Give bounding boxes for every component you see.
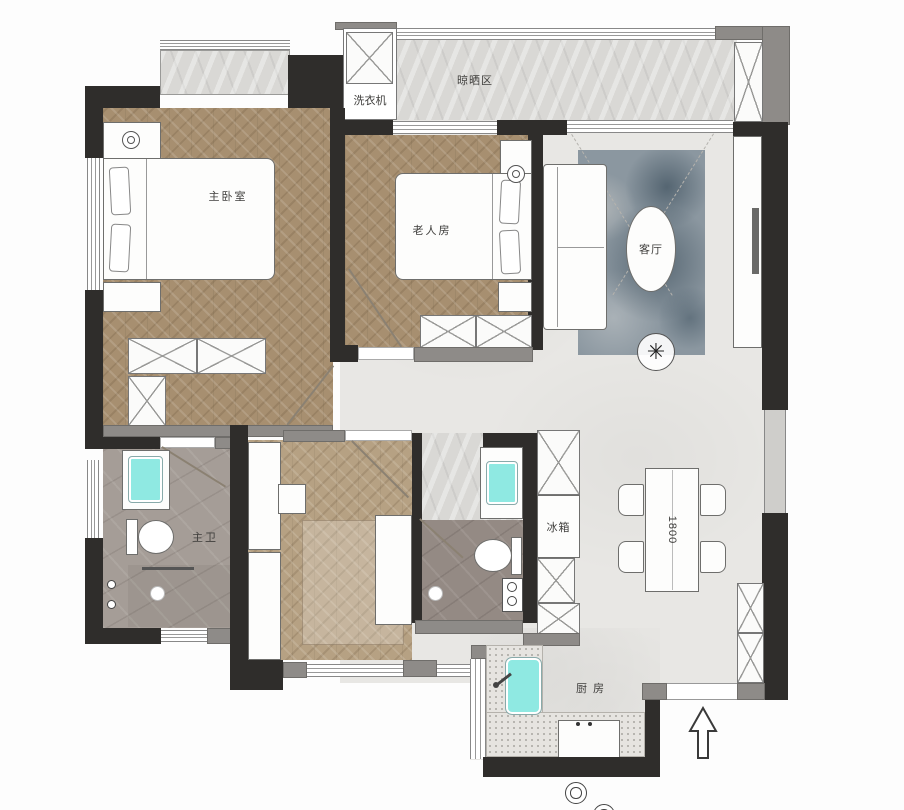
master-bedroom-window xyxy=(87,158,100,290)
master-nightstand-bottom xyxy=(103,282,161,312)
bath2-drain xyxy=(428,586,443,601)
master-wardrobe xyxy=(128,338,197,374)
wall-bath1-south xyxy=(85,628,161,644)
wall-kitchen-right xyxy=(645,700,660,777)
wall-kitchen-south xyxy=(483,757,660,777)
dining-window xyxy=(764,410,786,513)
bath2-sink xyxy=(487,462,517,504)
drying-area-label: 晾晒区 xyxy=(430,72,520,88)
master-bed-fold-line xyxy=(146,159,147,279)
dining-side-cabinet xyxy=(737,633,764,683)
elder-bed-fold-line xyxy=(492,174,493,279)
wall-hook xyxy=(507,596,517,606)
elder-nightstand-bottom xyxy=(498,282,532,312)
sofa-seat-divider xyxy=(558,247,604,248)
dining-chair xyxy=(700,541,726,573)
wall-middle-south-1 xyxy=(283,662,307,678)
middle-wardrobe xyxy=(248,552,281,660)
dining-side-cabinet xyxy=(737,583,764,633)
fan-plant-icon: ✳ xyxy=(637,333,675,371)
living-balcony-slider xyxy=(567,120,733,133)
bath1-sink xyxy=(129,457,162,502)
wall-bath2-south xyxy=(415,620,523,634)
lamp-icon xyxy=(507,165,525,183)
wall-hook xyxy=(107,580,116,589)
wall-bath1-south-r xyxy=(207,628,231,644)
balcony-window-glass xyxy=(395,28,737,40)
middle-wardrobe xyxy=(248,442,281,550)
pantry-cabinet xyxy=(537,603,580,635)
bath2-lintel xyxy=(483,433,523,447)
entry-jamb-left xyxy=(642,683,667,700)
entry-arrow-icon xyxy=(688,706,718,760)
elder-bed-pillow xyxy=(499,230,521,275)
elder-wardrobe xyxy=(476,315,532,348)
elder-bed-pillow xyxy=(499,180,521,225)
stove-knob xyxy=(588,722,592,726)
master-bed-pillow xyxy=(109,224,131,273)
dining-table-size-label: 1800 xyxy=(664,503,680,557)
dining-chair xyxy=(700,484,726,516)
bath2-toilet-tank xyxy=(511,537,522,575)
wall-elder-top-l xyxy=(345,120,393,135)
wall-middle-top xyxy=(283,430,345,442)
gas-stove xyxy=(558,720,620,760)
middle-door-opening xyxy=(345,430,412,441)
wall-middle-bath2 xyxy=(412,433,422,623)
master-bath-window xyxy=(87,460,99,538)
wall-middle-south-2 xyxy=(403,660,437,677)
elder-room-label: 老人房 xyxy=(398,222,466,238)
bath1-toilet-tank xyxy=(126,519,138,555)
elder-room-window xyxy=(393,121,497,134)
wall-elder-top-r xyxy=(497,120,567,135)
bath1-toilet xyxy=(138,520,174,554)
shower-area xyxy=(128,565,232,627)
middle-nightstand xyxy=(278,484,306,514)
dining-chair xyxy=(618,484,644,516)
pantry-cabinet xyxy=(537,558,575,603)
master-bed-pillow xyxy=(109,167,131,216)
wall-hall-south xyxy=(414,347,533,362)
wall-entry-corner xyxy=(765,683,788,700)
wall-bath1-top xyxy=(85,437,160,449)
shower-drain xyxy=(150,586,165,601)
towel-bar xyxy=(142,567,194,570)
dining-chair xyxy=(618,541,644,573)
kitchen-label: 厨房 xyxy=(555,680,625,696)
middle-bed xyxy=(375,515,412,625)
master-bedroom-label: 主卧室 xyxy=(183,188,273,204)
wall-middle-left xyxy=(230,425,248,665)
middle-south-window-1 xyxy=(307,664,403,677)
tv-panel xyxy=(752,208,759,274)
wall-right-corner xyxy=(733,122,788,136)
living-room-label: 客厅 xyxy=(621,241,681,257)
entry-door-opening xyxy=(667,683,737,700)
kitchen-window xyxy=(470,659,486,759)
wall-hook xyxy=(507,582,517,592)
wall-left-2 xyxy=(85,290,103,446)
wall-middle-south-corner xyxy=(230,660,283,690)
wall-right-1 xyxy=(762,136,788,410)
wall-bay-right xyxy=(288,55,345,108)
wall-top-right-v xyxy=(762,26,790,125)
wall-right-2 xyxy=(762,513,788,685)
bath1-south-window xyxy=(161,630,207,642)
stove-knob xyxy=(576,722,580,726)
floor-plan: 洗衣机 晾晒区 主卧室 老人房 客厅 ✳ xyxy=(0,0,904,810)
bay-window-floor xyxy=(160,50,290,95)
bath1-door-opening xyxy=(160,437,215,448)
fridge-label: 冰箱 xyxy=(535,519,582,535)
kitchen-faucet-base xyxy=(493,682,499,688)
stove-burner xyxy=(565,782,587,804)
elder-door-opening xyxy=(358,347,414,360)
bath2-toilet xyxy=(474,539,512,572)
master-wardrobe xyxy=(197,338,266,374)
pantry-cabinet xyxy=(537,430,580,495)
wall-left-1 xyxy=(85,86,103,158)
washing-machine-box xyxy=(346,32,393,84)
wall-hook xyxy=(107,600,116,609)
elder-wardrobe xyxy=(420,315,476,348)
bay-window-glass xyxy=(160,40,290,50)
washing-machine-label: 洗衣机 xyxy=(341,92,399,108)
wall-master-elder xyxy=(330,108,345,350)
lamp-icon xyxy=(122,131,140,149)
top-right-cabinet xyxy=(734,42,763,122)
kitchen-sink xyxy=(506,658,541,714)
sofa-back xyxy=(546,167,558,327)
wall-elder-south xyxy=(330,345,358,362)
stove-burner xyxy=(593,804,615,810)
entry-jamb-right xyxy=(737,683,765,700)
master-wardrobe-side xyxy=(128,376,166,426)
